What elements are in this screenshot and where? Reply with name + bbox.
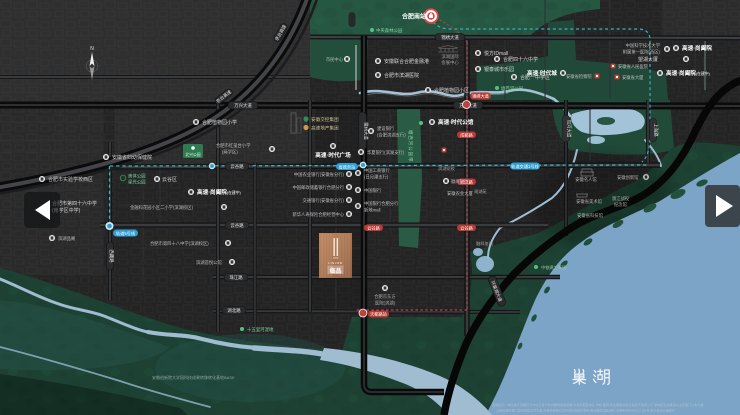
svg-text:金融科花园小区二小学(滨湖校区): 金融科花园小区二小学(滨湖校区) <box>130 204 194 211</box>
svg-text:安徽省妇幼保健院: 安徽省妇幼保健院 <box>112 154 152 161</box>
svg-text:中国邮政储蓄银行合肥分行: 中国邮政储蓄银行合肥分行 <box>292 184 344 191</box>
svg-text:成都路: 成都路 <box>460 132 473 139</box>
svg-text:省政务站: 省政务站 <box>339 163 356 170</box>
svg-text:中国银行: 中国银行 <box>364 187 382 194</box>
svg-text:高速·时代广场: 高速·时代广场 <box>315 151 351 159</box>
svg-text:西藏路: 西藏路 <box>108 249 115 263</box>
svg-text:锦绣大道: 锦绣大道 <box>472 93 490 100</box>
svg-text:合肥市红玺台小学: 合肥市红玺台小学 <box>216 142 251 149</box>
svg-text:(日月潭支行): (日月潭支行) <box>364 174 389 181</box>
svg-text:上海路: 上海路 <box>653 123 660 137</box>
svg-text:滨湖党校: 滨湖党校 <box>438 165 456 172</box>
svg-text:云谷路: 云谷路 <box>230 222 244 229</box>
svg-text:轨道5号线: 轨道5号线 <box>116 230 136 237</box>
svg-text:中铁建工集团: 中铁建工集团 <box>541 264 566 271</box>
svg-text:建设银行: 建设银行 <box>377 125 395 132</box>
svg-text:中国农业银行(安徽省分行): 中国农业银行(安徽省分行) <box>294 171 345 178</box>
svg-text:合肥京东方: 合肥京东方 <box>374 293 396 300</box>
svg-text:融科玺园: 融科玺园 <box>476 240 493 247</box>
svg-text:万兴大道: 万兴大道 <box>234 102 252 109</box>
svg-text:高速地产集团: 高速地产集团 <box>311 125 339 132</box>
svg-text:锦绣大道: 锦绣大道 <box>441 34 459 41</box>
svg-text:高速·时代公馆: 高速·时代公馆 <box>438 118 474 126</box>
svg-text:塘西河公园: 塘西河公园 <box>501 85 524 92</box>
svg-text:安徽名人馆: 安徽名人馆 <box>575 176 597 183</box>
svg-text:湖北路: 湖北路 <box>227 307 241 314</box>
svg-text:观湖苑: 观湖苑 <box>474 188 487 195</box>
svg-text:医院(滨湖): 医院(滨湖) <box>375 300 396 307</box>
svg-text:云谷区: 云谷区 <box>162 176 177 183</box>
svg-text:银泰城市乐园: 银泰城市乐园 <box>484 66 514 73</box>
svg-text:安徽省美术馆: 安徽省美术馆 <box>576 198 602 205</box>
svg-text:合肥市滨湖医院: 合肥市滨湖医院 <box>384 72 419 79</box>
svg-text:包河大道: 包河大道 <box>566 120 573 138</box>
svg-text:望湖大厦: 望湖大厦 <box>638 56 658 63</box>
svg-text:(两学区): (两学区) <box>222 149 238 155</box>
svg-text:北兴公园: 北兴公园 <box>185 152 200 157</box>
svg-text:(合肥滨湖支行): (合肥滨湖支行) <box>377 132 406 139</box>
svg-text:LINJOR: LINJOR <box>328 261 343 265</box>
svg-text:纪念馆: 纪念馆 <box>614 201 628 208</box>
svg-text:临品: 临品 <box>329 267 341 275</box>
svg-text:塘西河公园带: 塘西河公园带 <box>407 130 414 162</box>
svg-text:高速·时代城: 高速·时代城 <box>527 69 557 77</box>
svg-text:以相关政府部门最终批复文件为准 开发商保留对宣传资料修改的权: 以相关政府部门最终批复文件为准 开发商保留对宣传资料修改的权利 敬请留意最新资料… <box>496 408 675 413</box>
svg-text:合肥植物园小区: 合肥植物园小区 <box>434 87 469 94</box>
svg-text:十五里河湿地: 十五里河湿地 <box>247 326 274 333</box>
svg-text:悦方IDmall: 悦方IDmall <box>484 50 508 57</box>
svg-text:N: N <box>90 46 94 52</box>
svg-text:会展中心: 会展中心 <box>441 59 459 66</box>
svg-text:星光公园: 星光公园 <box>128 179 146 186</box>
svg-text:温馨提示：本区域示意图仅为方位示意不作为要约承诺依据 交通及: 温馨提示：本区域示意图仅为方位示意不作为要约承诺依据 交通及配套信息 学校 医院… <box>492 402 704 407</box>
svg-text:交通银行(安徽省分行): 交通银行(安徽省分行) <box>302 197 344 204</box>
svg-text:安徽省科技馆: 安徽省科技馆 <box>577 212 603 219</box>
svg-text:新地mall: 新地mall <box>364 207 381 214</box>
svg-text:合肥市实验学校西区: 合肥市实验学校西区 <box>48 176 93 183</box>
svg-text:合肥市第四十八中学(滨湖校区): 合肥市第四十八中学(滨湖校区) <box>150 240 209 247</box>
svg-text:华夏银行(滨湖支行): 华夏银行(滨湖支行) <box>367 149 405 156</box>
svg-text:轨道交通1号线: 轨道交通1号线 <box>511 163 539 170</box>
svg-text:中央森林公园: 中央森林公园 <box>376 27 403 34</box>
svg-text:滨湖国际: 滨湖国际 <box>441 53 459 60</box>
svg-text:安徽联合合肥金融港: 安徽联合合肥金融港 <box>384 58 429 65</box>
svg-text:云谷路: 云谷路 <box>367 225 380 232</box>
svg-text:安徽交控集团: 安徽交控集团 <box>311 116 339 123</box>
svg-text:附属第一医院(西区): 附属第一医院(西区) <box>623 49 661 56</box>
svg-text:安徽创新院大学园科技成果转移转化基地BASE: 安徽创新院大学园科技成果转移转化基地BASE <box>152 374 235 380</box>
svg-text:合肥植物园小学: 合肥植物园小学 <box>202 119 237 126</box>
svg-text:合肥南站: 合肥南站 <box>402 13 426 21</box>
svg-text:天都路站: 天都路站 <box>370 311 387 318</box>
svg-text:中国科学技术大学: 中国科学技术大学 <box>626 42 661 49</box>
svg-text:滨湖首悦公馆: 滨湖首悦公馆 <box>196 259 222 266</box>
svg-text:高速·尚阖院: 高速·尚阖院 <box>682 44 712 52</box>
svg-text:云谷路: 云谷路 <box>460 225 473 232</box>
svg-text:滨湖品阁: 滨湖品阁 <box>58 235 75 242</box>
svg-text:徽商银行: 徽商银行 <box>451 178 469 185</box>
svg-text:奥体公园: 奥体公园 <box>128 173 146 180</box>
svg-text:安徽省检察院: 安徽省检察院 <box>566 73 592 80</box>
svg-text:市民中心: 市民中心 <box>326 56 344 63</box>
svg-text:中国工商银行: 中国工商银行 <box>364 167 390 174</box>
svg-text:渡江战役: 渡江战役 <box>612 195 630 202</box>
svg-text:安徽创新馆: 安徽创新馆 <box>617 174 639 181</box>
svg-text:安徽省人民医院: 安徽省人民医院 <box>618 63 649 70</box>
svg-text:新华人寿保险合肥经营中心: 新华人寿保险合肥经营中心 <box>292 211 344 218</box>
svg-text:珠江路: 珠江路 <box>229 274 243 281</box>
svg-text:安徽省大厦: 安徽省大厦 <box>622 74 644 81</box>
svg-text:合肥四十六中学: 合肥四十六中学 <box>503 56 538 63</box>
svg-text:安徽农金大厦: 安徽农金大厦 <box>447 190 473 197</box>
svg-text:云谷路: 云谷路 <box>230 163 244 170</box>
svg-text:中国银行合肥分行: 中国银行合肥分行 <box>364 200 399 207</box>
